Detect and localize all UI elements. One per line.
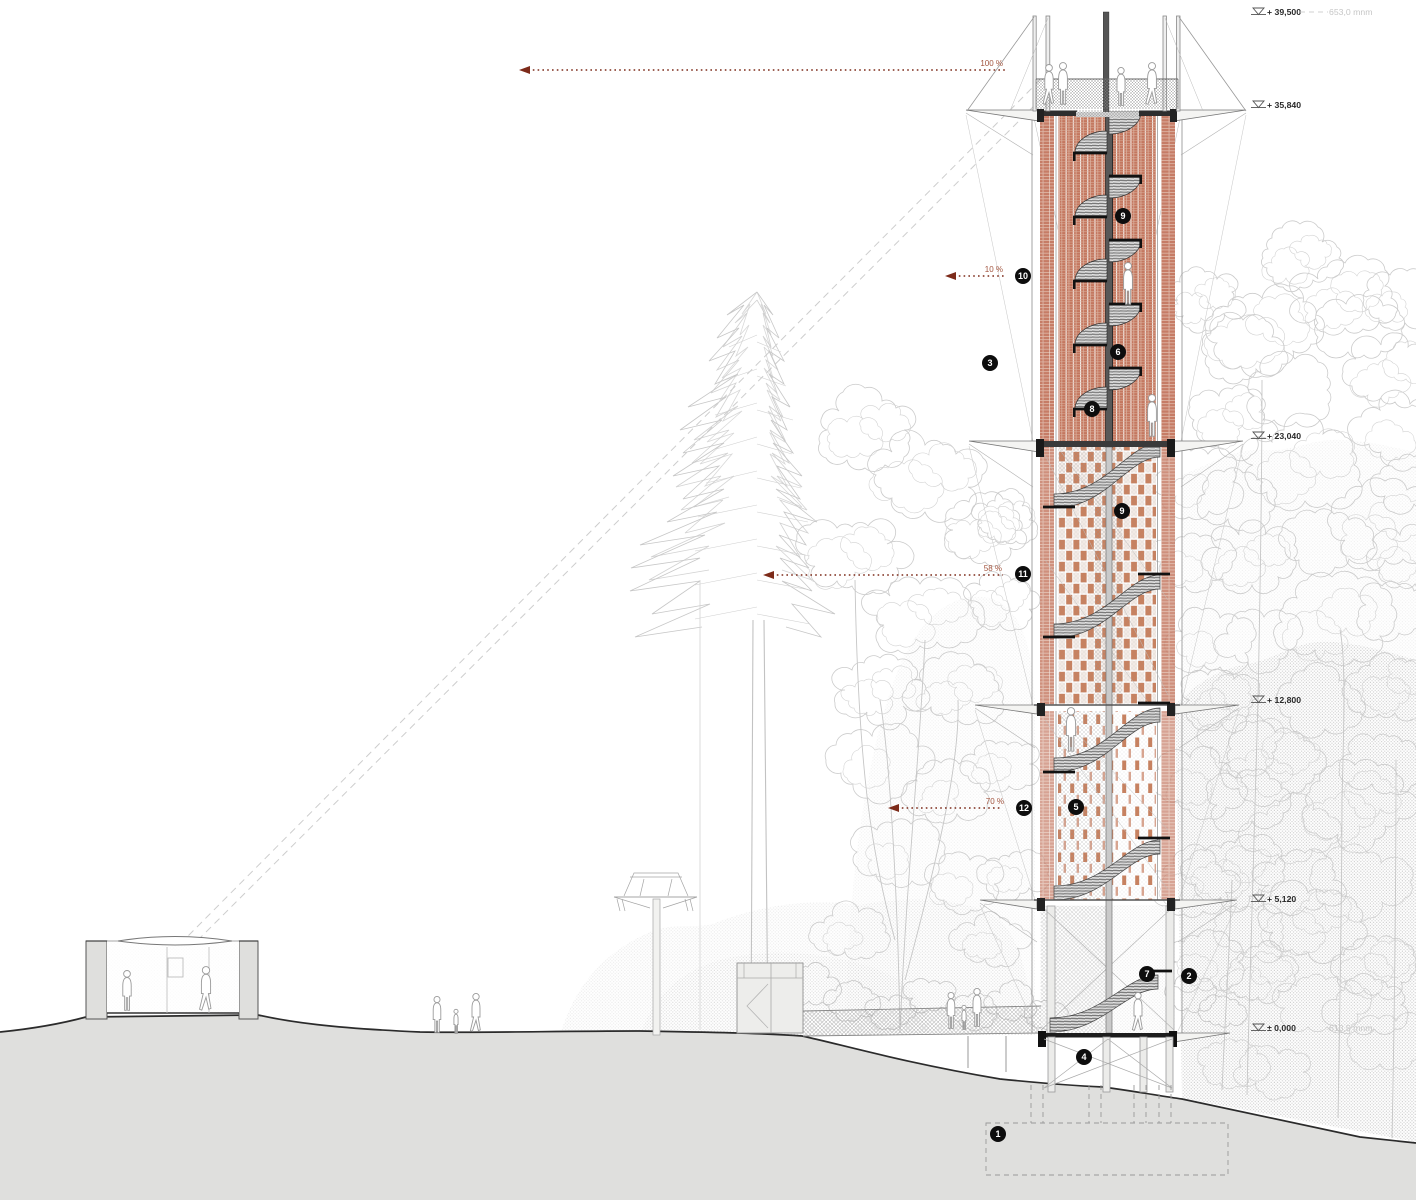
svg-text:5: 5 bbox=[1073, 802, 1078, 812]
svg-text:100 %: 100 % bbox=[980, 59, 1003, 68]
svg-text:+ 39,500: + 39,500 bbox=[1267, 7, 1301, 17]
svg-text:2: 2 bbox=[1186, 971, 1191, 981]
svg-text:653,0 mnm: 653,0 mnm bbox=[1329, 7, 1372, 17]
svg-text:+ 12,800: + 12,800 bbox=[1267, 695, 1301, 705]
svg-text:+ 5,120: + 5,120 bbox=[1267, 894, 1296, 904]
svg-text:11: 11 bbox=[1018, 569, 1028, 579]
svg-text:± 0,000: ± 0,000 bbox=[1267, 1023, 1296, 1033]
svg-text:10 %: 10 % bbox=[985, 265, 1003, 274]
svg-text:1: 1 bbox=[995, 1129, 1000, 1139]
svg-text:9: 9 bbox=[1119, 506, 1124, 516]
svg-text:9: 9 bbox=[1120, 211, 1125, 221]
svg-text:3: 3 bbox=[987, 358, 992, 368]
svg-text:+ 23,040: + 23,040 bbox=[1267, 431, 1301, 441]
svg-text:70 %: 70 % bbox=[986, 797, 1004, 806]
svg-text:613,5 mnm: 613,5 mnm bbox=[1329, 1023, 1372, 1033]
svg-text:12: 12 bbox=[1019, 803, 1029, 813]
svg-text:+ 35,840: + 35,840 bbox=[1267, 100, 1301, 110]
svg-text:7: 7 bbox=[1144, 969, 1149, 979]
svg-text:6: 6 bbox=[1115, 347, 1120, 357]
svg-text:4: 4 bbox=[1081, 1052, 1086, 1062]
svg-text:10: 10 bbox=[1018, 271, 1028, 281]
svg-text:8: 8 bbox=[1089, 404, 1094, 414]
svg-text:58 %: 58 % bbox=[984, 564, 1002, 573]
